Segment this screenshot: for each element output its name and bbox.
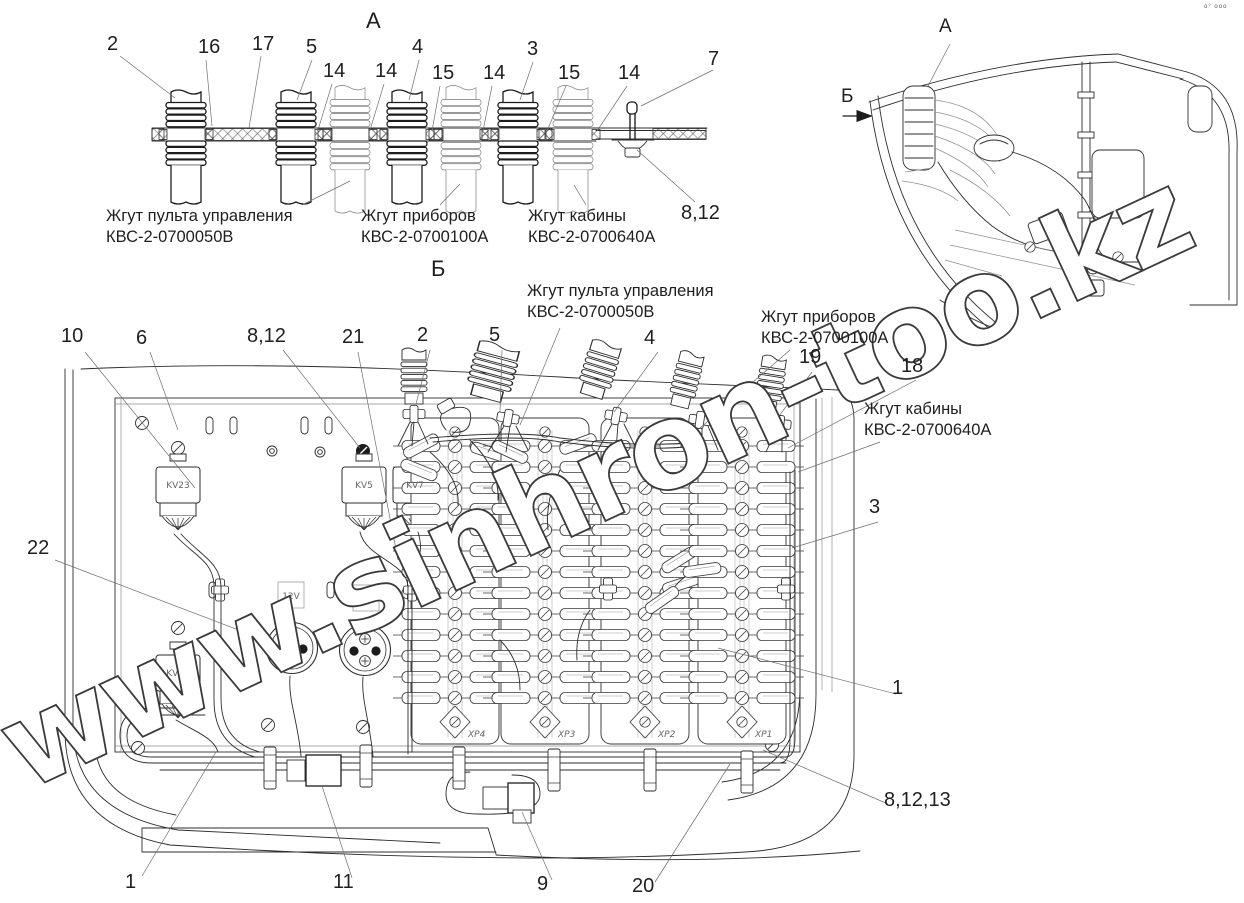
voltage-label-24v: 24V (357, 595, 375, 605)
conduit-light-1 (330, 85, 370, 213)
harness-label-pult-a: Жгут пульта управления КВС-2-0700050В (106, 206, 293, 247)
power-socket-right (340, 625, 391, 676)
harness-label-kabina-a: Жгут кабины КВС-2-0700640А (528, 206, 655, 247)
relay-kv5 (342, 454, 386, 530)
callout-b-6: 6 (136, 327, 147, 350)
view-b-drawing (55, 328, 916, 882)
wiring-diagram-svg: KV23 KV5 KV7 KV24 12V 24V XP4 XP3 XP2 XP… (0, 0, 1244, 903)
connector-11 (287, 755, 341, 786)
callout-b-21: 21 (342, 326, 364, 349)
callout-a-15a: 15 (432, 62, 454, 85)
strip-label-xp4: XP4 (467, 730, 486, 740)
relay-kv7-label: KV7 (406, 481, 424, 491)
callout-a-17: 17 (252, 33, 274, 56)
callout-a-3: 3 (527, 38, 538, 61)
callout-a-14a: 14 (323, 60, 345, 83)
callout-b-11: 11 (333, 871, 354, 894)
callout-a-7: 7 (708, 48, 719, 71)
power-socket-left (267, 623, 318, 674)
inset-label-b: Б (841, 86, 853, 108)
harness-label-pribor-b: Жгут приборов КВС-2-0700100А (761, 307, 888, 348)
callout-b-18: 18 (901, 355, 923, 378)
inset-location-view (843, 44, 1237, 337)
harness-label-pribor-a: Жгут приборов КВС-2-0700100А (361, 206, 488, 247)
inset-label-a: А (939, 16, 952, 38)
corner-mark: о° ооо (1204, 4, 1227, 10)
connector-9 (483, 783, 534, 823)
relay-kv23-label: KV23 (166, 481, 190, 491)
callout-a-14c: 14 (483, 62, 505, 85)
conduit-light-3 (553, 85, 593, 213)
callout-b-4: 4 (644, 327, 655, 350)
relay-kv24-label: KV24 (166, 669, 190, 679)
conduit-dark-2 (276, 90, 316, 204)
cab-top-contour (81, 366, 838, 390)
callout-b-9: 9 (537, 873, 548, 896)
callout-a-14d: 14 (618, 62, 640, 85)
harness-label-pult-b: Жгут пульта управления КВС-2-0700050В (527, 281, 714, 322)
callout-b-19: 19 (799, 346, 821, 369)
strip-label-xp3: XP3 (557, 730, 576, 740)
callout-a-8-12: 8,12 (681, 202, 720, 225)
callout-b-10: 10 (61, 325, 83, 348)
callout-a-4: 4 (412, 36, 423, 59)
callout-a-15b: 15 (558, 62, 580, 85)
callout-b-5: 5 (489, 324, 500, 347)
strip-label-xp1: XP1 (754, 730, 772, 740)
callout-b-22: 22 (27, 537, 49, 560)
callout-b-8-12-13: 8,12,13 (884, 789, 951, 812)
callout-b-3: 3 (869, 496, 880, 519)
callout-b-20: 20 (632, 875, 654, 898)
relay-kv5-label: KV5 (355, 481, 373, 491)
view-a-title: А (366, 8, 381, 34)
bottom-sill (142, 828, 860, 860)
callout-b-1-right: 1 (892, 677, 903, 700)
conduit-dark-1 (166, 90, 206, 204)
strip-label-xp2: XP2 (657, 730, 676, 740)
conduit-dark-3 (387, 90, 427, 204)
callout-a-14b: 14 (375, 60, 397, 83)
callout-a-2: 2 (107, 33, 118, 56)
panel-slots (206, 417, 334, 598)
voltage-label-12v: 12V (282, 592, 300, 602)
harness-label-kabina-b: Жгут кабины КВС-2-0700640А (864, 399, 991, 440)
callout-b-2: 2 (417, 324, 428, 347)
callout-a-5: 5 (306, 36, 317, 59)
drawing-sheet: KV23 KV5 KV7 KV24 12V 24V XP4 XP3 XP2 XP… (0, 0, 1244, 903)
bolt-view-a (612, 102, 654, 157)
callout-b-1-bottom: 1 (125, 871, 136, 894)
conduit-light-2 (441, 85, 481, 213)
view-b-title: Б (431, 256, 445, 282)
callout-b-8-12: 8,12 (247, 325, 286, 348)
callout-a-16: 16 (198, 36, 220, 59)
conduit-dark-4 (498, 90, 538, 204)
